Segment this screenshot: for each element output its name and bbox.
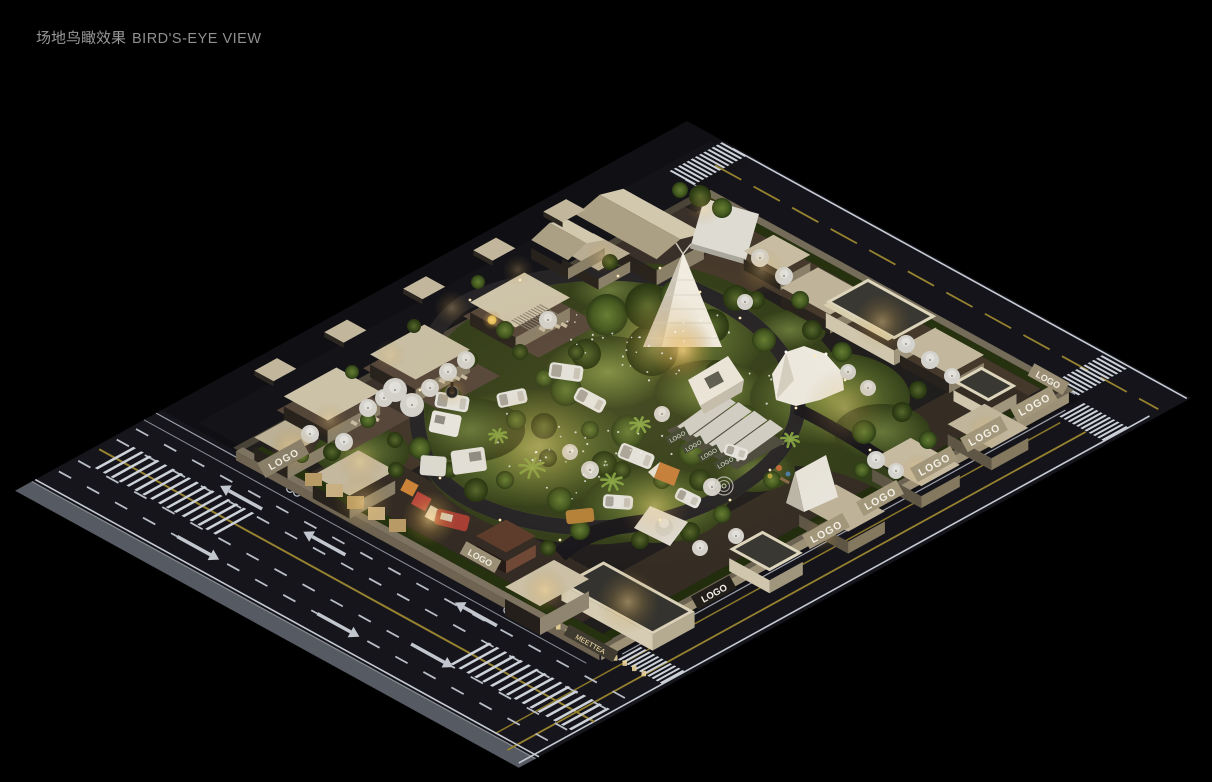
svg-text:BIRD'S-EYE VIEW: BIRD'S-EYE VIEW xyxy=(132,31,262,47)
